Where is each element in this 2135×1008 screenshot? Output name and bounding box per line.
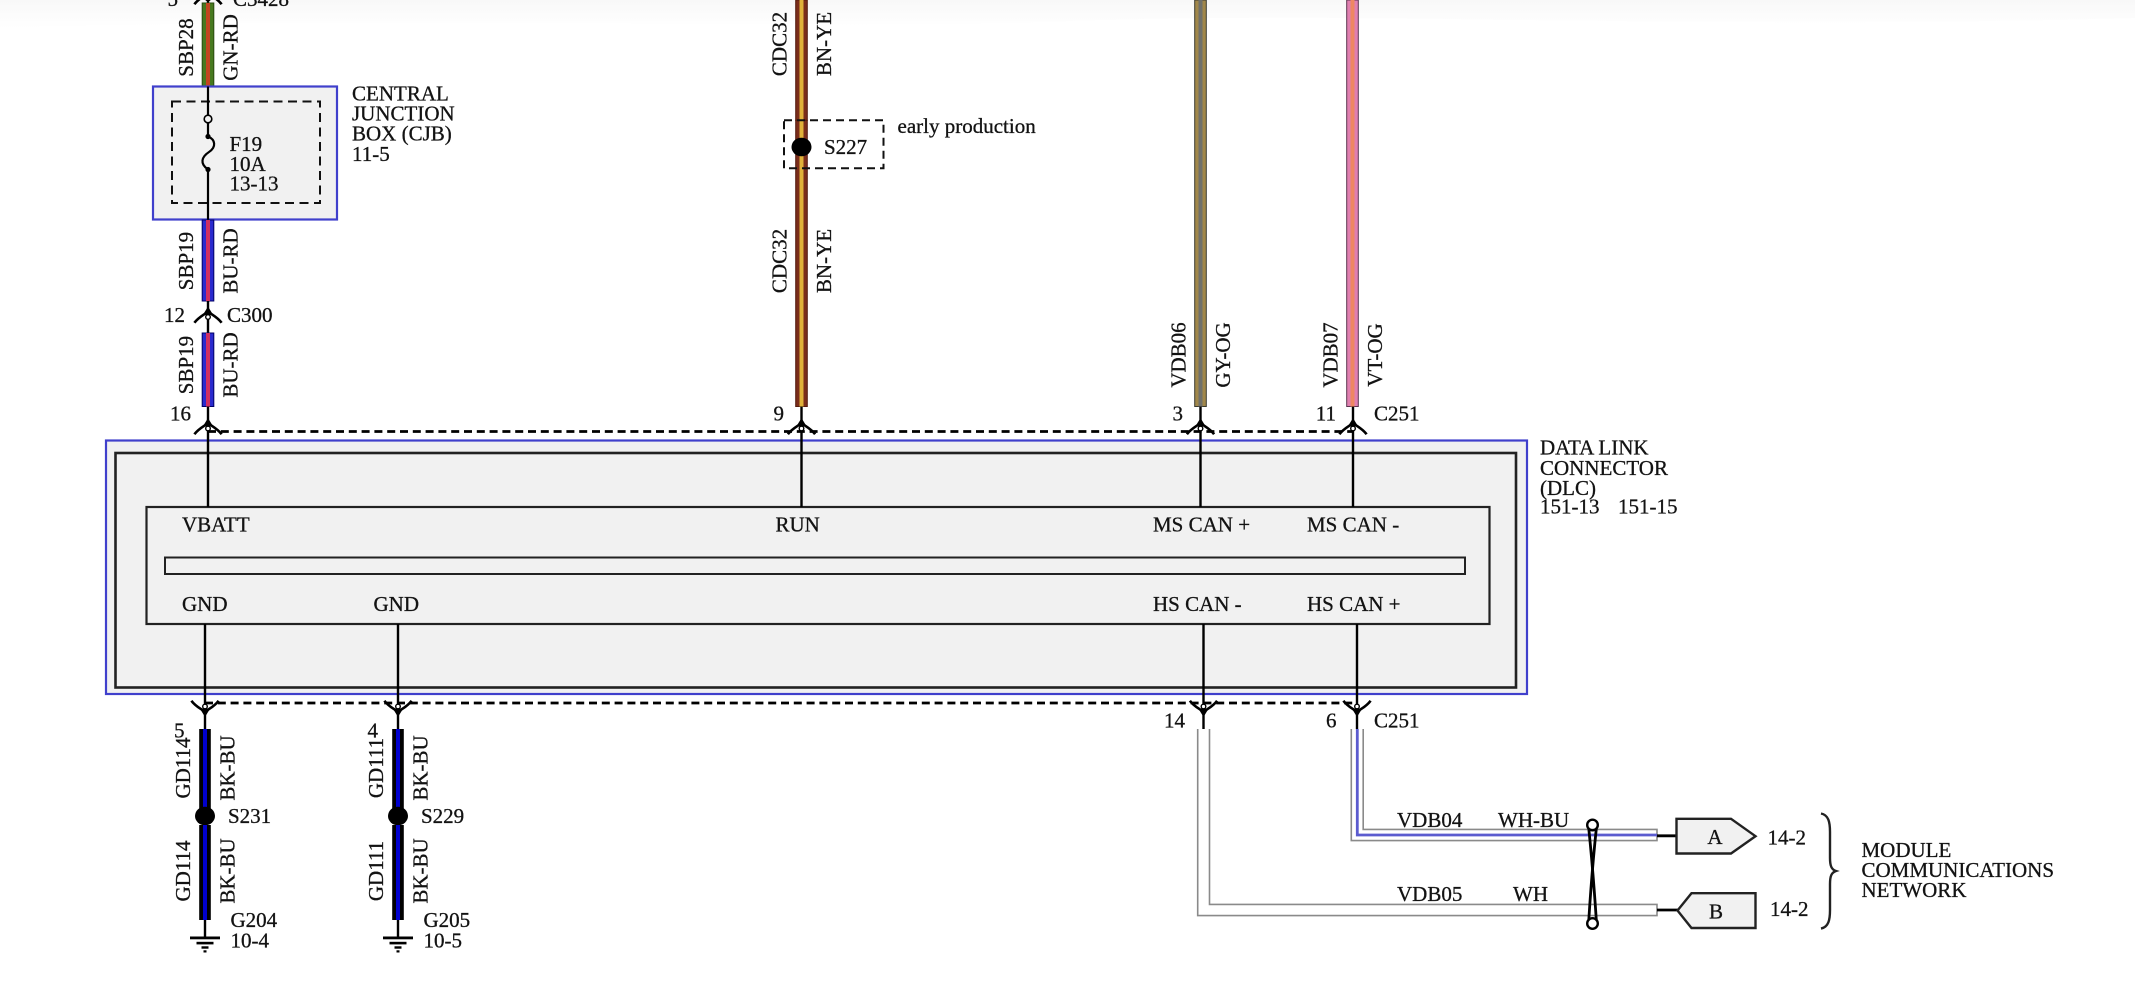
svg-text:SBP19: SBP19 [174, 232, 198, 290]
svg-text:14: 14 [1164, 709, 1186, 733]
svg-text:BK-BU: BK-BU [216, 838, 240, 903]
svg-text:BN-YE: BN-YE [812, 229, 836, 293]
svg-text:MS CAN +: MS CAN + [1153, 513, 1250, 537]
svg-text:GND: GND [182, 592, 228, 616]
svg-text:GD111: GD111 [364, 841, 388, 901]
svg-text:S229: S229 [421, 804, 464, 828]
svg-text:C300: C300 [227, 303, 273, 327]
svg-text:VDB05: VDB05 [1397, 882, 1462, 906]
svg-text:NETWORK: NETWORK [1862, 878, 1967, 902]
svg-text:10-5: 10-5 [424, 929, 463, 953]
svg-text:S231: S231 [228, 804, 271, 828]
svg-text:10-4: 10-4 [231, 929, 270, 953]
svg-text:11: 11 [1316, 402, 1336, 426]
svg-text:BU-RD: BU-RD [219, 228, 243, 293]
svg-text:5: 5 [168, 0, 179, 11]
svg-text:CDC32: CDC32 [768, 229, 792, 293]
svg-text:VT-OG: VT-OG [1363, 323, 1387, 386]
svg-text:HS CAN +: HS CAN + [1307, 592, 1401, 616]
svg-text:BK-BU: BK-BU [409, 735, 433, 800]
svg-text:SBP28: SBP28 [174, 18, 198, 76]
svg-text:C251: C251 [1374, 709, 1420, 733]
svg-text:RUN: RUN [776, 513, 820, 537]
svg-text:early production: early production [898, 114, 1037, 138]
svg-text:C251: C251 [1374, 402, 1420, 426]
svg-text:151-15: 151-15 [1618, 495, 1678, 519]
svg-text:CDC32: CDC32 [768, 12, 792, 76]
svg-text:VDB04: VDB04 [1397, 808, 1463, 832]
svg-text:VBATT: VBATT [182, 513, 250, 537]
svg-text:S227: S227 [824, 135, 867, 159]
svg-text:GY-OG: GY-OG [1211, 322, 1235, 387]
svg-text:C3428: C3428 [233, 0, 289, 11]
svg-text:GD114: GD114 [171, 840, 195, 902]
svg-text:VDB07: VDB07 [1319, 322, 1343, 387]
svg-text:GD114: GD114 [171, 737, 195, 799]
svg-text:16: 16 [170, 402, 191, 426]
svg-text:6: 6 [1326, 709, 1337, 733]
svg-text:VDB06: VDB06 [1167, 322, 1191, 387]
svg-text:3: 3 [1173, 402, 1184, 426]
svg-text:13-13: 13-13 [230, 172, 279, 196]
svg-text:MS CAN -: MS CAN - [1307, 513, 1399, 537]
svg-text:SBP19: SBP19 [174, 336, 198, 394]
svg-text:WH: WH [1513, 882, 1548, 906]
svg-text:WH-BU: WH-BU [1498, 808, 1569, 832]
svg-text:BK-BU: BK-BU [409, 838, 433, 903]
svg-text:HS CAN -: HS CAN - [1153, 592, 1242, 616]
svg-text:14-2: 14-2 [1768, 826, 1807, 850]
svg-text:9: 9 [774, 402, 785, 426]
svg-text:GND: GND [374, 592, 420, 616]
svg-text:A: A [1707, 825, 1723, 849]
svg-text:11-5: 11-5 [352, 142, 390, 166]
svg-text:151-13: 151-13 [1540, 495, 1600, 519]
svg-text:B: B [1709, 900, 1723, 924]
svg-text:BU-RD: BU-RD [219, 332, 243, 397]
svg-text:14-2: 14-2 [1770, 897, 1809, 921]
svg-text:12: 12 [164, 303, 185, 327]
svg-text:GD111: GD111 [364, 738, 388, 798]
svg-text:GN-RD: GN-RD [219, 14, 243, 81]
svg-text:BK-BU: BK-BU [216, 735, 240, 800]
svg-text:BN-YE: BN-YE [812, 12, 836, 76]
